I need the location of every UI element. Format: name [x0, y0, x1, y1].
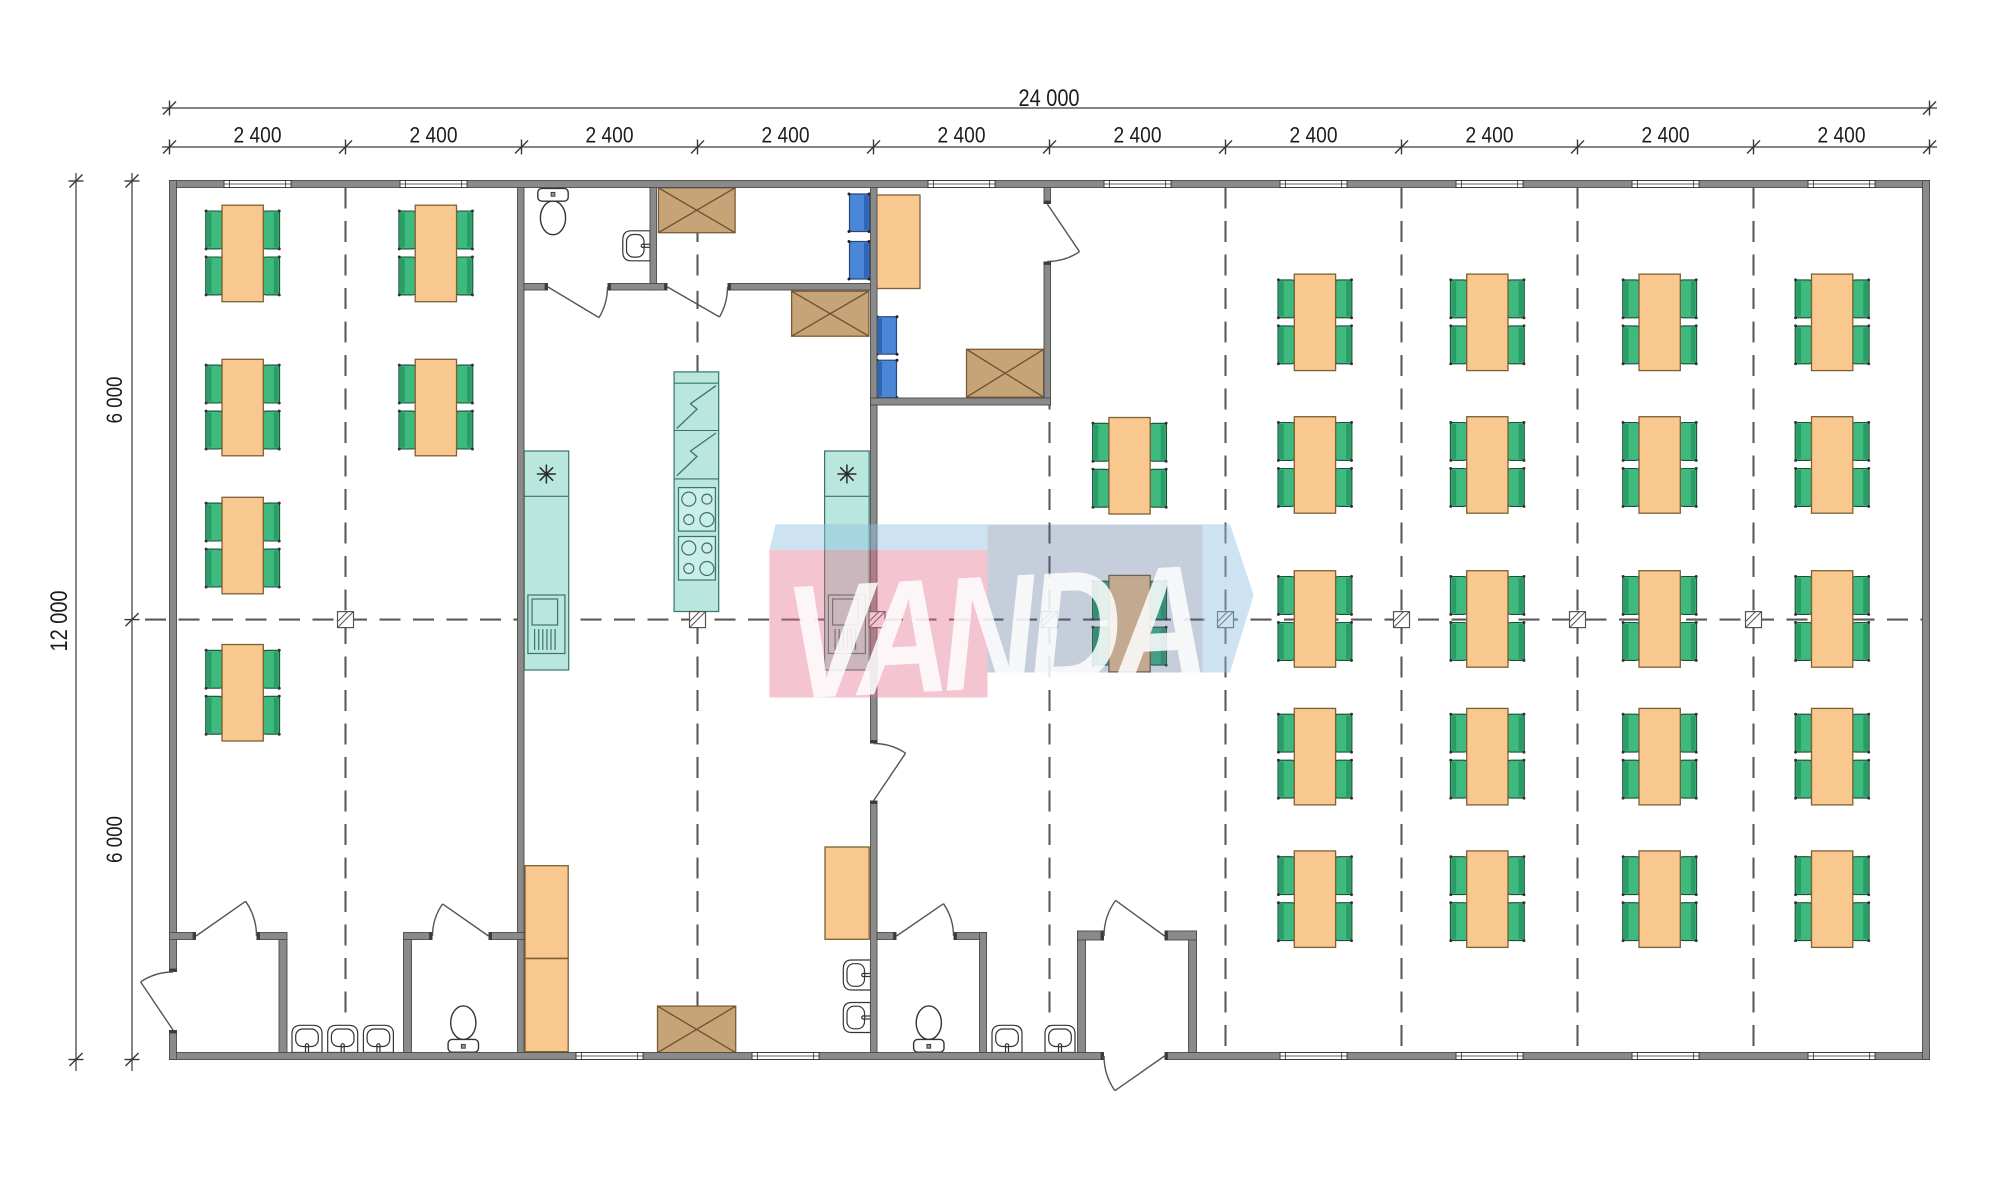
svg-text:VANDA: VANDA	[781, 532, 1205, 735]
svg-text:2 400: 2 400	[1466, 123, 1514, 148]
svg-text:24 000: 24 000	[1019, 85, 1080, 112]
svg-text:12 000: 12 000	[46, 591, 73, 652]
svg-text:6 000: 6 000	[102, 377, 127, 424]
svg-text:2 400: 2 400	[938, 123, 986, 148]
svg-text:2 400: 2 400	[234, 123, 282, 148]
svg-text:2 400: 2 400	[586, 123, 634, 148]
svg-text:2 400: 2 400	[1290, 123, 1338, 148]
svg-text:2 400: 2 400	[410, 123, 458, 148]
svg-text:2 400: 2 400	[1114, 123, 1162, 148]
svg-text:6 000: 6 000	[102, 816, 127, 863]
svg-text:2 400: 2 400	[762, 123, 810, 148]
svg-text:2 400: 2 400	[1642, 123, 1690, 148]
svg-text:2 400: 2 400	[1818, 123, 1866, 148]
